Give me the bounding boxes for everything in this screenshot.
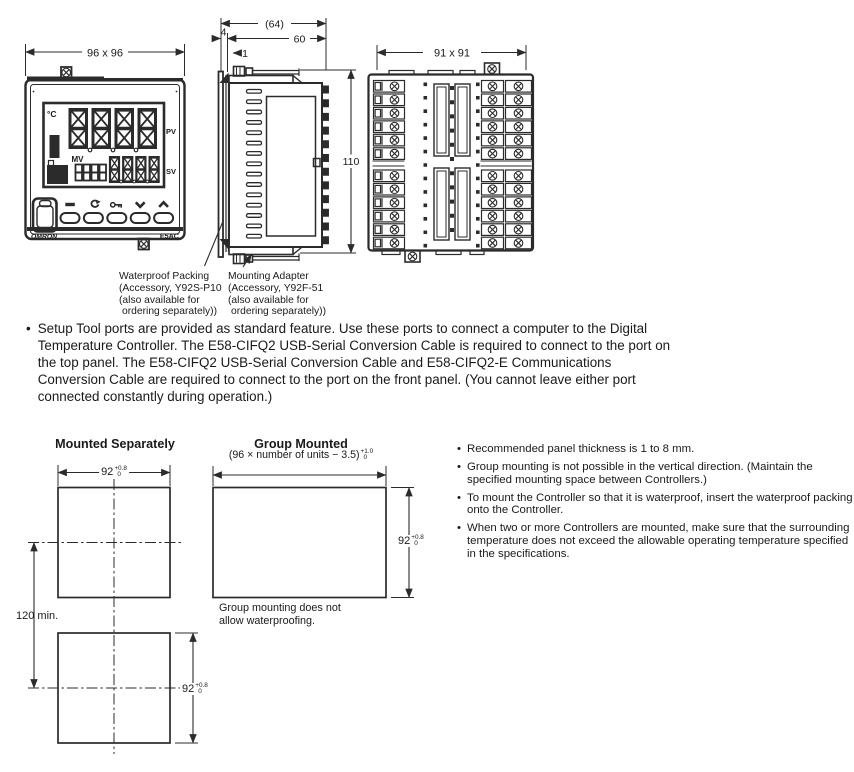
rear-screw-bottom xyxy=(405,251,420,263)
setup-tool-note: • Setup Tool ports are provided as stand… xyxy=(26,320,678,405)
key-icons xyxy=(65,200,168,208)
bullet: • xyxy=(457,443,461,456)
side-dim-depth: 60 xyxy=(294,34,306,46)
note-text: When two or more Controllers are mounted… xyxy=(467,522,853,560)
dim-value: 92 xyxy=(101,466,113,478)
note-item: • Group mounting is not possible in the … xyxy=(457,461,853,486)
bullet: • xyxy=(457,522,461,560)
cutout-height-dim-left: 92+0.80 xyxy=(180,683,210,695)
terminal-block-left xyxy=(373,81,405,249)
note-text: To mount the Controller so that it is wa… xyxy=(467,492,853,517)
formula-base: (96 × number of units − 3.5) xyxy=(229,449,360,461)
down-key-icon xyxy=(136,202,145,207)
callout-line: (also available for xyxy=(228,295,326,307)
bullet: • xyxy=(457,461,461,486)
datasheet-page: 96 x 96 °C xyxy=(0,0,854,772)
side-dim-flange: 4 xyxy=(221,27,227,39)
waterproof-packing-callout: Waterproof Packing (Accessory, Y92S-P10 … xyxy=(119,271,222,318)
front-view-drawing: 96 x 96 °C xyxy=(26,44,185,250)
mv-label: MV xyxy=(72,155,85,164)
callout-line: ordering separately)) xyxy=(119,306,222,318)
up-key-icon xyxy=(159,202,168,207)
callout-line: (also available for xyxy=(119,295,222,307)
dim-tolerance-lower: 0 xyxy=(411,541,424,547)
dim-value: 92 xyxy=(398,535,410,547)
side-dim-height: 110 xyxy=(343,156,360,168)
side-view-drawing: (64) 60 4 1 110 xyxy=(205,18,364,268)
front-buttons xyxy=(61,213,174,223)
bullet: • xyxy=(26,320,31,405)
pv-label: PV xyxy=(166,127,176,136)
model-label: E5AC xyxy=(160,232,179,241)
pv-digits xyxy=(69,108,158,152)
group-note-line: allow waterproofing. xyxy=(219,615,341,628)
vent-slots xyxy=(247,90,262,239)
rear-dim-label: 91 x 91 xyxy=(434,48,470,60)
dim-value: 92 xyxy=(182,683,194,695)
center-channel xyxy=(425,83,478,249)
formula-tolerance-lower: 0 xyxy=(361,455,374,461)
terminal-block-right xyxy=(481,81,532,249)
setup-port-cover xyxy=(33,199,57,232)
mounted-separately-title: Mounted Separately xyxy=(55,437,175,451)
spacing-dim-label: 120 min. xyxy=(16,610,58,622)
bullet: • xyxy=(457,492,461,517)
note-item: • To mount the Controller so that it is … xyxy=(457,492,853,517)
cutout-group-drawing xyxy=(213,466,414,598)
mounting-adapter-callout: Mounting Adapter (Accessory, Y92F-51 (al… xyxy=(228,271,326,318)
mounting-notes-list: • Recommended panel thickness is 1 to 8 … xyxy=(457,443,853,566)
setup-tool-note-text: Setup Tool ports are provided as standar… xyxy=(38,320,678,405)
note-text: Recommended panel thickness is 1 to 8 mm… xyxy=(467,443,694,456)
waterproof-leader-line xyxy=(205,220,224,266)
cutout-width-dim-top: 92+0.80 xyxy=(99,466,129,478)
rear-top-tabs xyxy=(389,71,475,75)
side-dim-packing: 1 xyxy=(242,48,248,60)
callout-line: ordering separately)) xyxy=(228,306,326,318)
front-dim-label: 96 x 96 xyxy=(87,48,123,60)
callout-line: Mounting Adapter xyxy=(228,271,326,283)
shift-key-icon xyxy=(111,203,122,208)
unit-indicator: °C xyxy=(47,109,57,119)
rear-screw-top xyxy=(485,63,500,75)
note-text: Group mounting is not possible in the ve… xyxy=(467,461,853,486)
mounting-adapter-bottom xyxy=(229,247,302,264)
sv-label: SV xyxy=(166,167,176,176)
group-mounting-note: Group mounting does not allow waterproof… xyxy=(219,602,341,628)
cutout-height-dim-group: 92+0.80 xyxy=(396,535,426,547)
note-item: • When two or more Controllers are mount… xyxy=(457,522,853,560)
sv-digits xyxy=(109,156,160,183)
dim-tolerance-lower: 0 xyxy=(114,472,127,478)
level-key-icon xyxy=(65,203,75,206)
display-window: °C PV MV xyxy=(44,103,177,187)
note-item: • Recommended panel thickness is 1 to 8 … xyxy=(457,443,853,456)
mode-key-icon xyxy=(91,200,100,207)
mv-digits xyxy=(76,165,107,181)
rear-view-drawing: 91 x 91 xyxy=(369,45,534,262)
mounting-screw-top xyxy=(61,67,72,78)
mounting-adapter-top xyxy=(229,67,302,84)
group-note-line: Group mounting does not xyxy=(219,602,341,615)
dim-tolerance-lower: 0 xyxy=(195,689,208,695)
side-dim-overall: (64) xyxy=(265,19,284,31)
callout-line: (Accessory, Y92S-P10 xyxy=(119,283,222,295)
callout-line: (Accessory, Y92F-51 xyxy=(228,283,326,295)
callout-line: Waterproof Packing xyxy=(119,271,222,283)
group-width-formula: (96 × number of units − 3.5)+1.00 xyxy=(229,449,373,461)
brand-logo: OMRON xyxy=(31,234,58,241)
